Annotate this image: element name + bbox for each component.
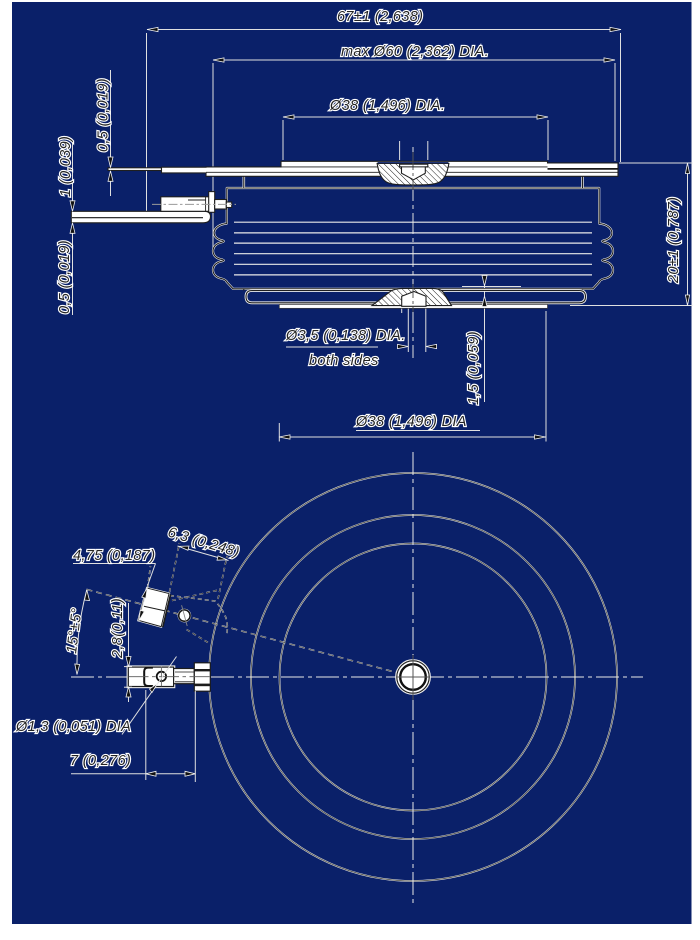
svg-text:Ø38 (1,496) DIA: Ø38 (1,496) DIA — [355, 414, 467, 430]
svg-text:20±1 (0,787): 20±1 (0,787) — [666, 197, 682, 284]
svg-text:both sides: both sides — [309, 353, 379, 369]
svg-text:Ø3,5 (0,138) DIA.: Ø3,5 (0,138) DIA. — [285, 328, 406, 344]
svg-text:2,8(0,11): 2,8(0,11) — [110, 598, 126, 659]
svg-text:Ø38 (1,496) DIA.: Ø38 (1,496) DIA. — [329, 98, 445, 114]
svg-text:1,5 (0,059): 1,5 (0,059) — [466, 331, 482, 405]
svg-text:0,5 (0,019): 0,5 (0,019) — [96, 78, 112, 152]
svg-text:max Ø60 (2,362) DIA.: max Ø60 (2,362) DIA. — [341, 44, 489, 60]
svg-text:7 (0,276): 7 (0,276) — [70, 753, 131, 769]
svg-text:4,75 (0,187): 4,75 (0,187) — [73, 548, 155, 564]
svg-text:0,5 (0,019): 0,5 (0,019) — [57, 240, 73, 314]
svg-text:1 (0,039): 1 (0,039) — [58, 136, 74, 197]
svg-text:Ø1,3 (0,051) DIA: Ø1,3 (0,051) DIA — [15, 719, 131, 735]
svg-text:67±1 (2,638): 67±1 (2,638) — [337, 9, 423, 25]
